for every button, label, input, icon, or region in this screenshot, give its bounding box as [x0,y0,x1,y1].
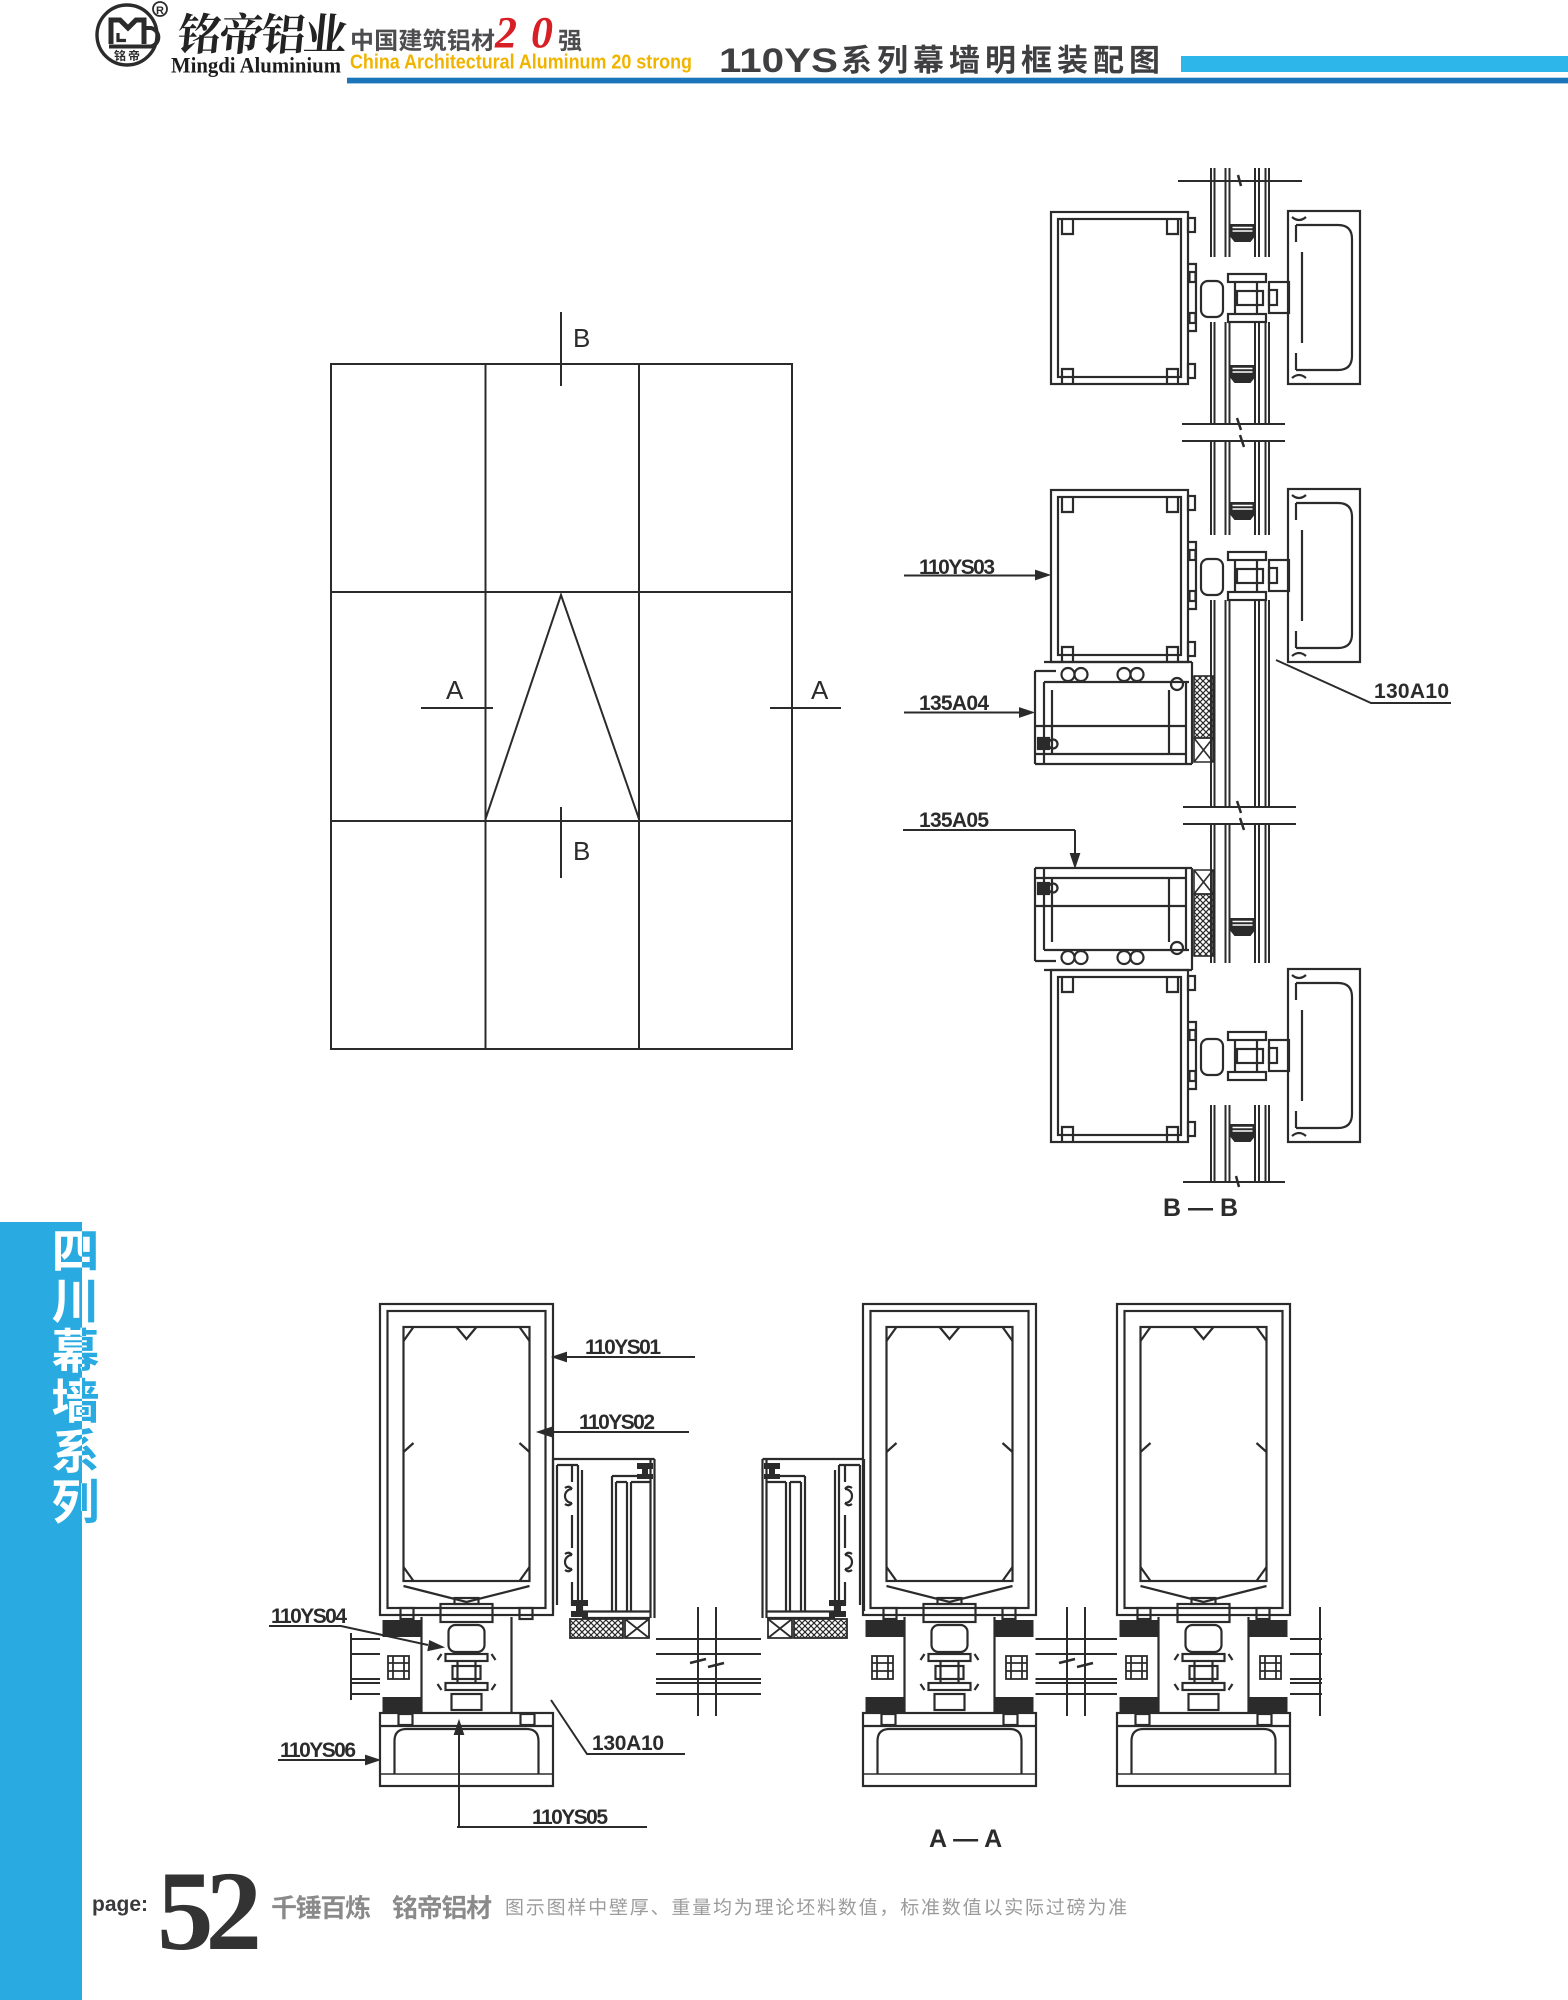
svg-text:page:: page: [92,1893,148,1916]
svg-text:110YS05: 110YS05 [532,1806,608,1829]
svg-text:130A10: 130A10 [592,1732,664,1755]
svg-text:A: A [811,675,829,705]
svg-text:R: R [156,5,164,17]
svg-text:B — B: B — B [1163,1194,1238,1222]
svg-text:A — A: A — A [929,1825,1002,1853]
svg-text:110YS02: 110YS02 [579,1411,655,1434]
svg-text:A: A [446,675,464,705]
svg-text:Mingdi Aluminium: Mingdi Aluminium [171,53,341,78]
svg-text:130A10: 130A10 [1374,680,1449,703]
svg-text:China Architectural Aluminum 2: China Architectural Aluminum 20 strong [350,52,692,74]
svg-text:135A05: 135A05 [919,809,989,832]
svg-text:110YS: 110YS [719,42,838,80]
svg-text:110YS04: 110YS04 [271,1605,347,1628]
svg-text:110YS01: 110YS01 [585,1336,661,1359]
svg-text:20: 20 [494,8,553,57]
svg-text:110YS06: 110YS06 [280,1739,356,1762]
svg-text:52: 52 [157,1849,262,1974]
svg-text:B: B [573,836,590,866]
svg-text:B: B [573,323,590,353]
